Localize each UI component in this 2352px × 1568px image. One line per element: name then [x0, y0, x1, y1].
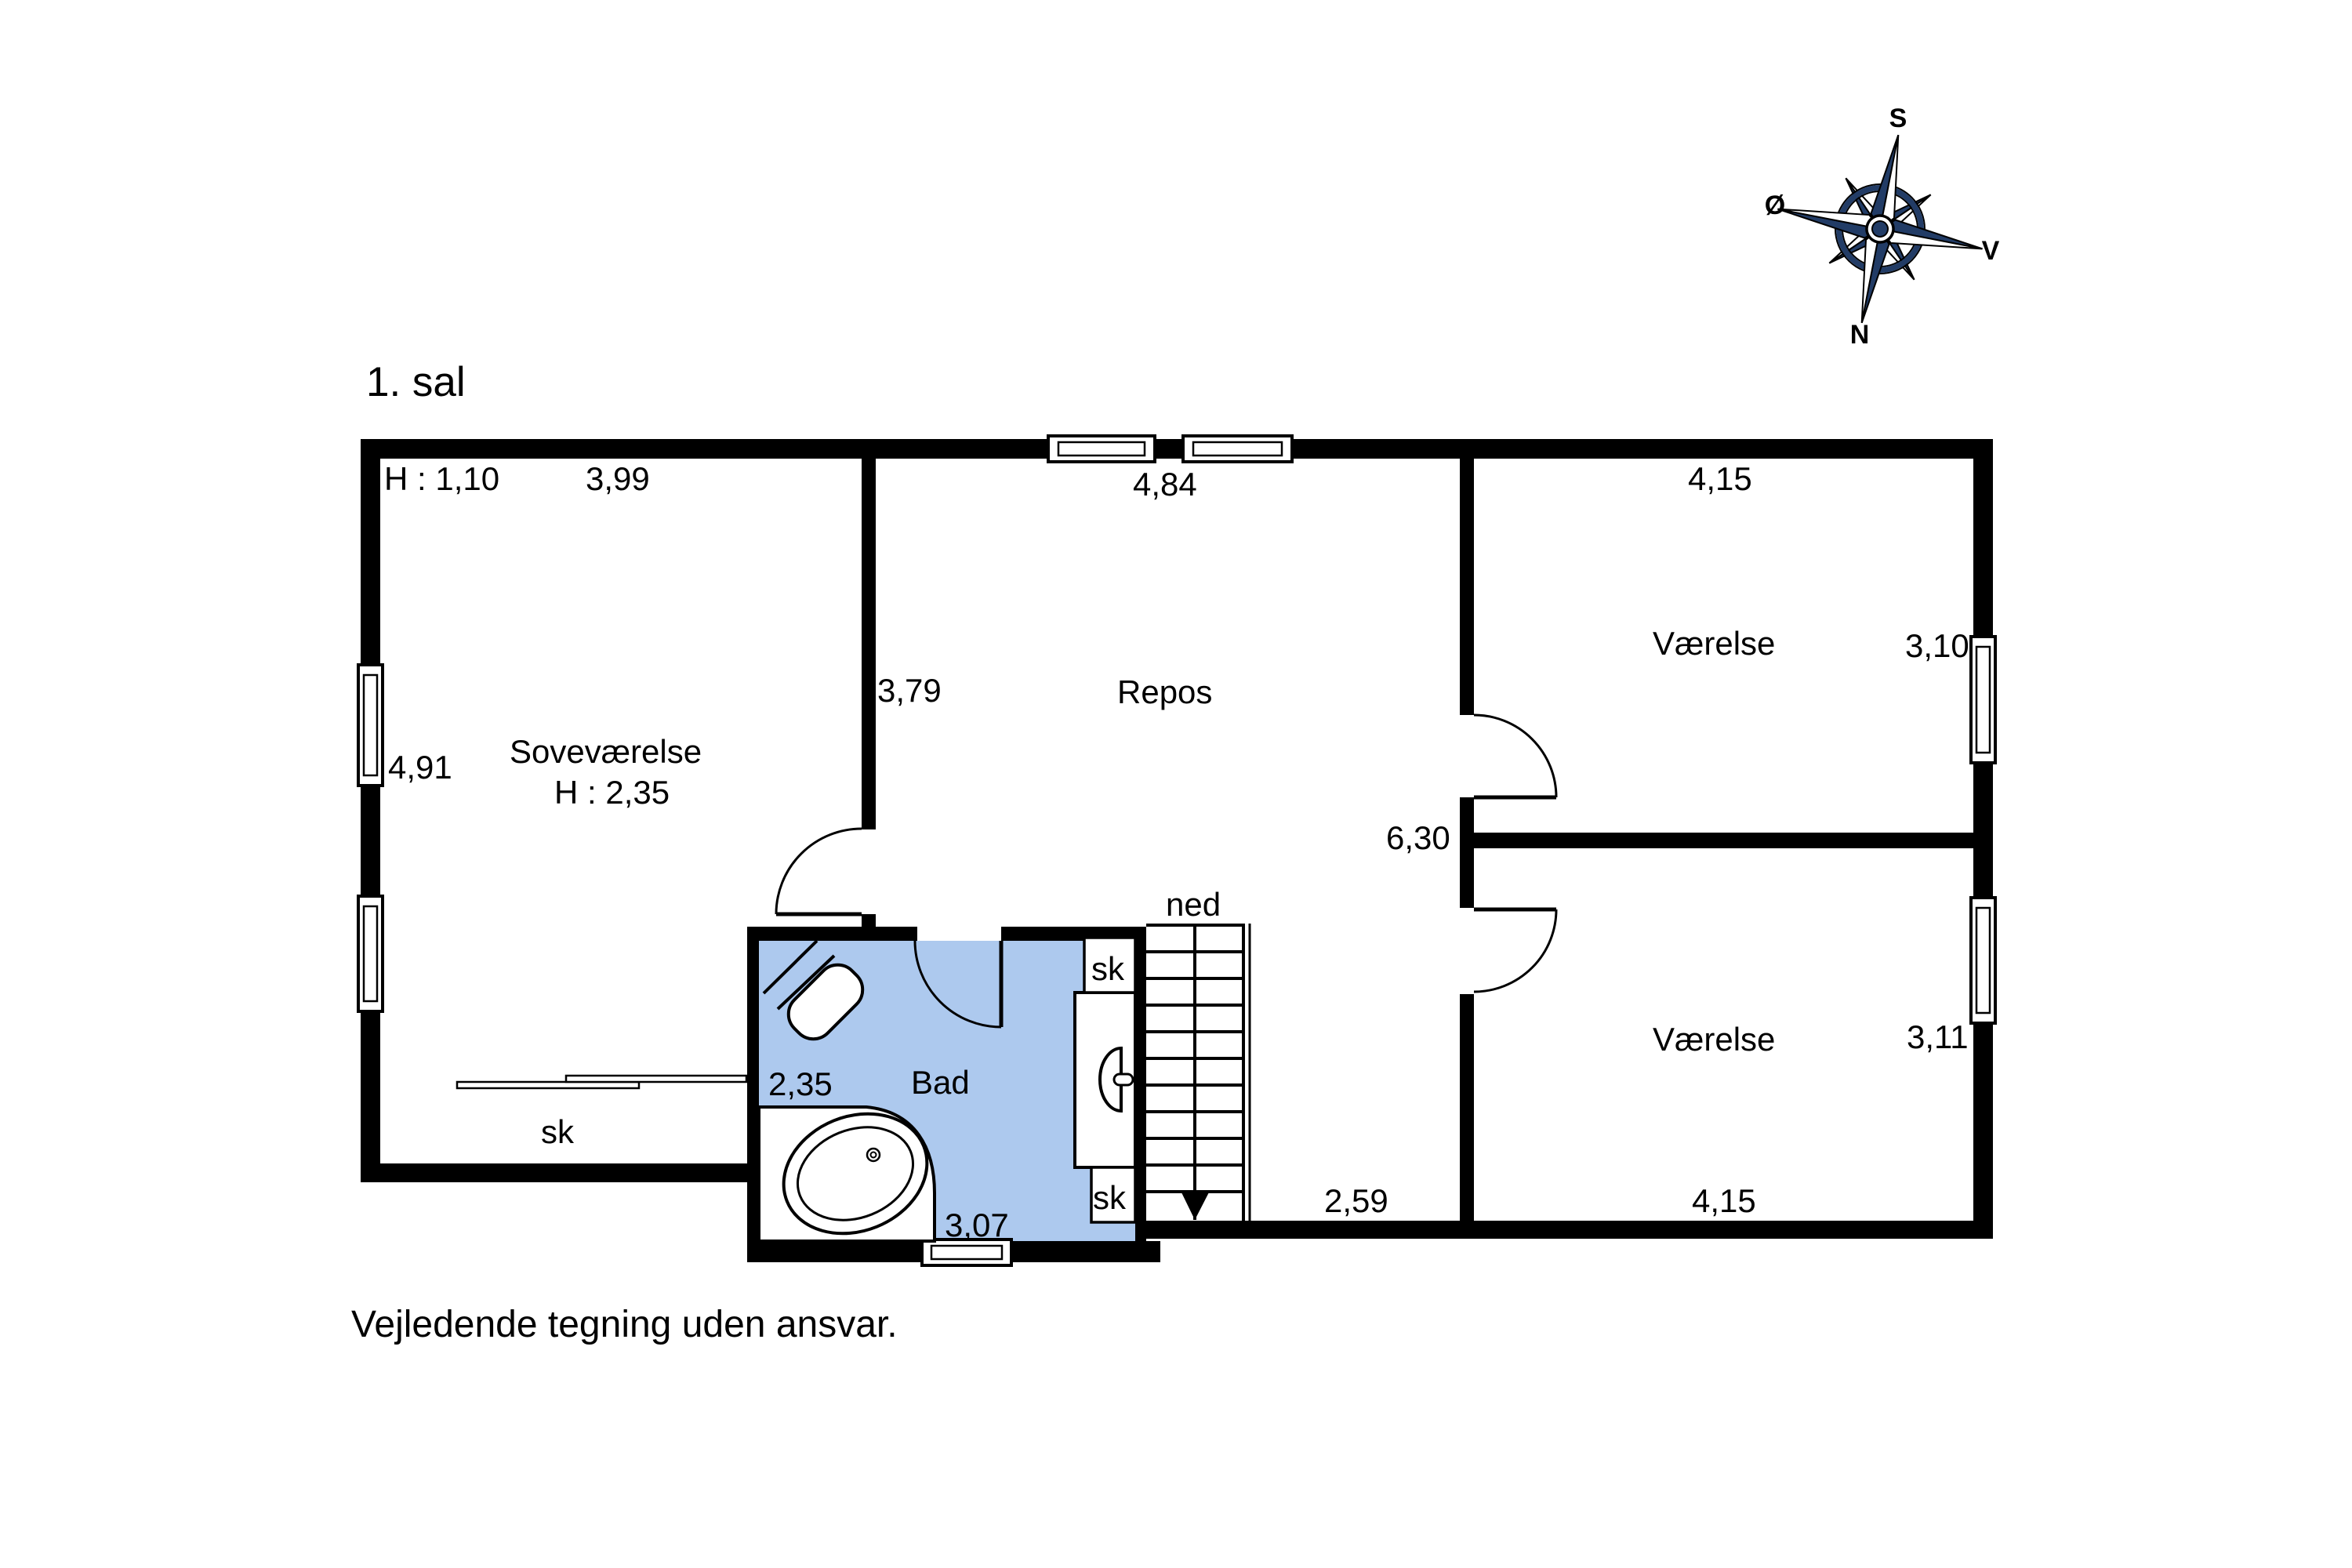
disclaimer-text: Vejledende tegning uden ansvar.	[351, 1304, 898, 1345]
window-right-lower	[1971, 898, 1995, 1023]
window-left-lower	[358, 896, 383, 1011]
closet-label-bad-bottom: sk	[1093, 1179, 1127, 1216]
dim-hall-bottom-width: 2,59	[1324, 1182, 1388, 1219]
dim-vaerelse-upper-depth: 3,10	[1905, 627, 1969, 664]
wall-sovevaerelse-divider	[862, 459, 876, 829]
wall-mid-vertical-upper	[1460, 459, 1474, 715]
wall-outer-top	[361, 439, 1993, 459]
window-top-2	[1183, 436, 1292, 462]
floorplan-page: S Ø V N 1. sal H : 1,10 3,99 4,84 4,15 S…	[0, 0, 2352, 1568]
dim-sovevaerelse-width: 3,99	[586, 460, 650, 497]
dim-vaerelse-upper-width: 4,15	[1688, 460, 1752, 497]
wall-bath-top-left	[747, 927, 917, 941]
faucet	[1114, 1074, 1133, 1085]
wall-outer-left	[361, 439, 380, 1182]
dim-low-ceiling: H : 1,10	[384, 460, 499, 497]
wall-bath-stair	[1135, 927, 1146, 1262]
compass-label-v: V	[1982, 236, 2000, 266]
dim-vaerelse-lower-width: 4,15	[1692, 1182, 1756, 1219]
wall-outer-right	[1973, 439, 1993, 1239]
dim-sovevaerelse-depth: 4,91	[388, 749, 452, 786]
room-label-bad: Bad	[911, 1064, 970, 1101]
wall-bottom-right	[1135, 1221, 1993, 1239]
room-label-sovevaerelse: Soveværelse	[510, 733, 702, 770]
compass-label-oe: Ø	[1765, 191, 1785, 220]
dim-repos-depth: 3,79	[877, 672, 942, 709]
floorplan-drawing: S Ø V N 1. sal H : 1,10 3,99 4,84 4,15 S…	[0, 0, 2352, 1568]
wall-bath-left	[747, 927, 759, 1262]
dim-repos-width: 4,84	[1133, 466, 1197, 503]
vanity-sink	[1075, 993, 1135, 1167]
room-label-vaerelse-lower: Værelse	[1653, 1021, 1775, 1058]
room-ceiling-sovevaerelse: H : 2,35	[554, 774, 670, 811]
wall-bottom-left	[361, 1163, 759, 1182]
stairs-label: ned	[1166, 886, 1221, 923]
closet-label-sovevaerelse: sk	[541, 1113, 575, 1150]
dim-bad-width-lower: 3,07	[945, 1207, 1009, 1243]
compass-label-n: N	[1850, 320, 1870, 350]
wall-vaerelse-divider	[1474, 833, 1973, 848]
window-left-upper	[358, 665, 383, 786]
window-top-1	[1048, 436, 1155, 462]
wall-mid-vertical-lower	[1460, 994, 1474, 1221]
room-label-repos: Repos	[1117, 673, 1212, 710]
closet-label-bad-top: sk	[1091, 950, 1125, 987]
compass-rose: S Ø V N	[1759, 103, 2001, 350]
page-title: 1. sal	[366, 359, 466, 405]
window-right-upper	[1971, 637, 1995, 763]
compass-label-s: S	[1889, 103, 1907, 133]
bathtub-drain	[867, 1149, 880, 1161]
room-label-vaerelse-upper: Værelse	[1653, 625, 1775, 662]
dim-vaerelse-lower-depth: 3,11	[1907, 1018, 1969, 1055]
dim-bad-width-upper: 2,35	[768, 1065, 833, 1102]
dim-hall-length: 6,30	[1386, 819, 1450, 856]
wall-mid-vertical-middle	[1460, 797, 1474, 908]
